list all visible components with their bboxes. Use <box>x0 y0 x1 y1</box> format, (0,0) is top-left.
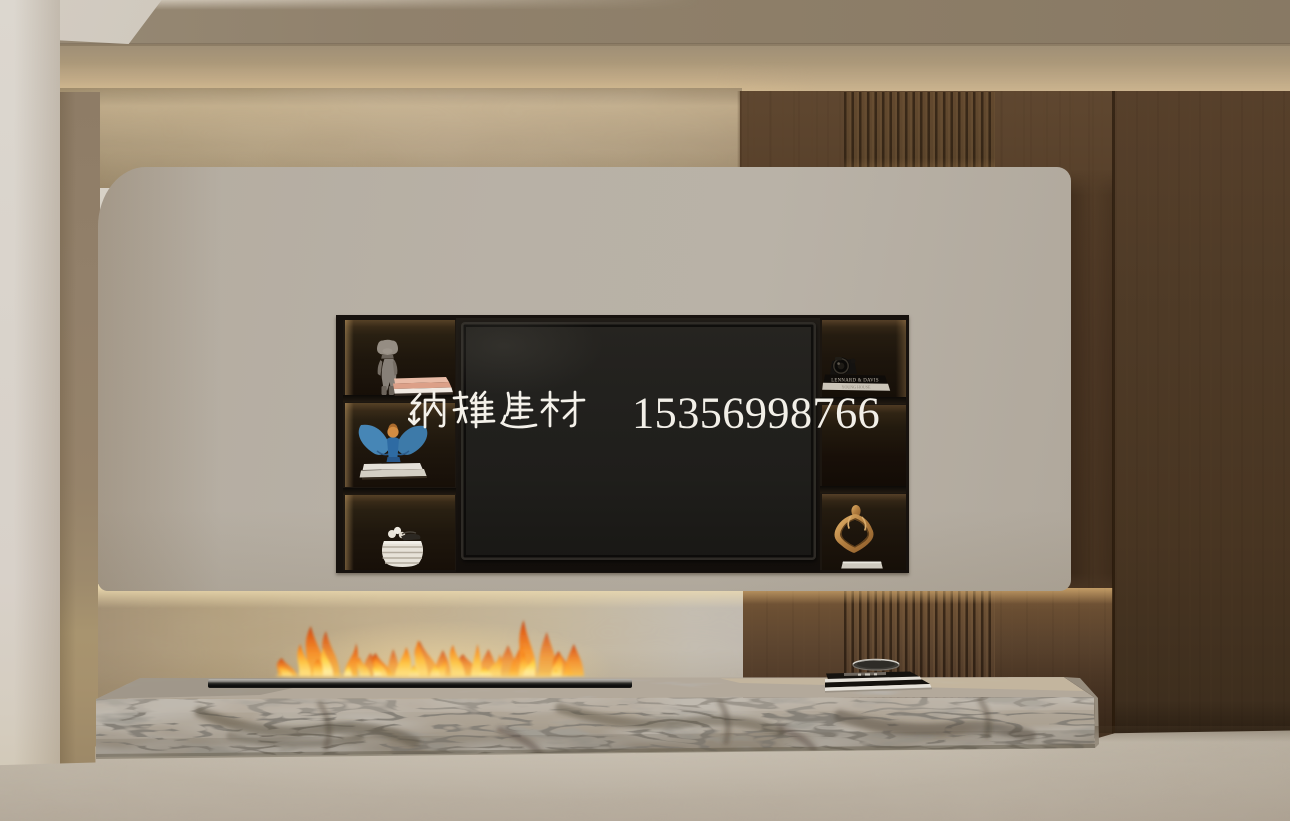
svg-text:YOUNG HOUSE: YOUNG HOUSE <box>842 385 871 390</box>
svg-text:15356998766: 15356998766 <box>632 394 880 436</box>
svg-text:LENNARD & DAVIS: LENNARD & DAVIS <box>831 378 879 383</box>
